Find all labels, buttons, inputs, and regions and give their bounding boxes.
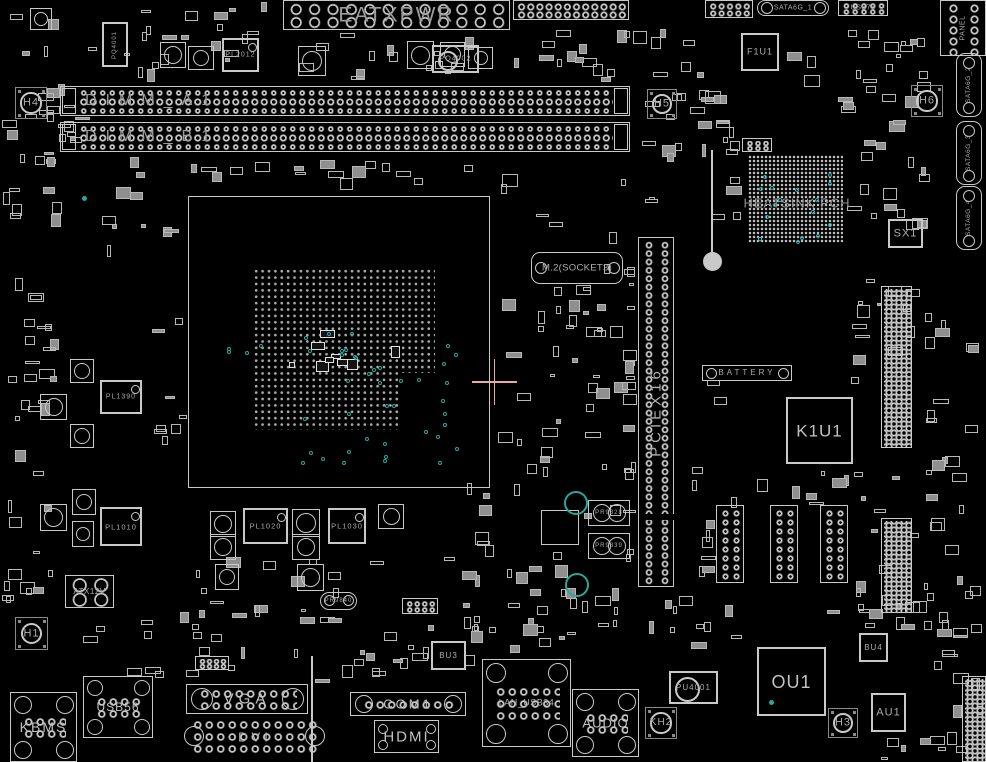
small-component: [300, 617, 315, 624]
small-component: [12, 204, 22, 216]
fiducial-h1-label: H1: [23, 628, 39, 639]
sx1-chip-label: SX1: [894, 228, 918, 239]
pin-circle: [193, 50, 209, 66]
small-component: [881, 757, 888, 760]
small-component: [908, 157, 914, 169]
small-component: [957, 576, 962, 584]
small-component: [886, 64, 893, 72]
dimm-b1-slot-label: DIMM_B1: [85, 129, 219, 145]
small-component: [706, 530, 710, 541]
small-component: [255, 162, 270, 173]
pl1020-chip[interactable]: PL1020: [243, 508, 288, 544]
small-component: [665, 600, 671, 609]
fiducial-tick: [648, 734, 651, 737]
teal-via: [441, 399, 445, 403]
small-component: [858, 41, 870, 48]
small-component: [517, 393, 531, 401]
small-component: [164, 229, 179, 232]
atx12v-connector[interactable]: ATX12V: [65, 575, 114, 608]
small-component: [673, 606, 677, 613]
bu4-chip[interactable]: BU4: [859, 633, 888, 662]
small-component: [787, 52, 801, 60]
small-component: [549, 222, 563, 227]
small-component: [625, 469, 634, 481]
teal-via-2: [82, 196, 87, 201]
small-component: [141, 10, 151, 13]
dimm-b1-slot[interactable]: DIMM_B1: [60, 122, 630, 152]
pl1390-chip-label: PL1390: [106, 394, 136, 401]
pq4002-chip[interactable]: PQ4002: [432, 45, 479, 73]
small-component: [294, 166, 304, 171]
small-component: [116, 187, 131, 199]
small-component: [660, 29, 665, 38]
small-component: [653, 72, 668, 77]
small-component: [884, 204, 897, 210]
teal-ring-2: [565, 573, 589, 597]
small-component: [185, 11, 199, 22]
small-component: [369, 51, 374, 62]
small-component: [26, 588, 32, 595]
socket-center-pad: [289, 362, 295, 368]
small-component: [550, 374, 555, 378]
small-component: [211, 634, 222, 642]
small-component: [241, 647, 245, 659]
heatsink-pch-label: HEATSINK PCH: [730, 194, 864, 212]
small-component: [730, 177, 740, 184]
small-component: [595, 596, 611, 606]
small-component: [860, 184, 869, 195]
header-bottom-1: [402, 598, 438, 614]
pciex16-slot[interactable]: PCIEX16: [638, 237, 674, 587]
small-component: [192, 624, 199, 630]
small-component: [370, 561, 384, 565]
teal-via: [445, 381, 449, 385]
small-component: [112, 224, 117, 229]
small-component: [47, 106, 60, 113]
small-component: [858, 301, 862, 305]
fiducial-h6: H6: [911, 85, 943, 117]
small-component: [575, 57, 585, 63]
teal-via: [417, 378, 421, 382]
panel-header[interactable]: PANEL: [940, 0, 986, 56]
small-component: [474, 624, 478, 631]
small-component: [714, 397, 727, 405]
small-component: [935, 328, 950, 337]
hole-field: [884, 521, 911, 612]
mount-hole-1: [703, 252, 722, 271]
small-component: [514, 484, 520, 496]
choke-20: [378, 504, 404, 529]
small-component: [477, 541, 490, 545]
fiducial-h4: H4: [15, 87, 47, 119]
pl2012-chip[interactable]: PL2012: [222, 38, 259, 72]
teal-via: [436, 435, 440, 439]
teal-via: [828, 223, 832, 227]
teal-via: [770, 186, 774, 190]
small-component: [47, 157, 55, 167]
kbms-port[interactable]: KBMS: [10, 692, 77, 762]
bu3-chip[interactable]: BU3: [431, 641, 466, 670]
teal-via: [340, 349, 344, 353]
small-component: [952, 473, 967, 481]
pin-circle: [444, 695, 462, 713]
pin-field: [517, 3, 627, 19]
teal-via: [227, 347, 231, 351]
small-component: [953, 705, 962, 718]
small-component: [863, 79, 876, 84]
pin-circle: [214, 515, 232, 533]
small-component: [15, 416, 21, 421]
small-component: [920, 738, 931, 745]
fiducial-tick: [831, 733, 834, 736]
small-component: [556, 306, 561, 314]
header-top-1: [513, 0, 629, 20]
teal-via: [346, 379, 350, 383]
component-cluster-29: [465, 480, 495, 580]
sata6g-3-connector-label: SATA6G_3: [966, 135, 973, 171]
small-component: [414, 178, 423, 186]
teal-via: [442, 362, 446, 366]
small-component: [933, 399, 949, 404]
small-component: [726, 149, 737, 155]
small-component: [8, 569, 22, 579]
com1-port[interactable]: COM1: [350, 692, 466, 716]
pin-circle: [56, 696, 74, 714]
teal-via: [800, 236, 804, 240]
small-component: [705, 91, 721, 103]
small-component: [352, 166, 366, 178]
fiducial-tick: [650, 92, 653, 95]
dvi-port-label: DVI: [238, 731, 272, 744]
choke-2: [160, 42, 186, 68]
fiducial-tick: [853, 711, 856, 714]
small-component: [579, 44, 587, 55]
dimm-a1-slot[interactable]: DIMM_A1: [60, 86, 630, 116]
small-component: [542, 41, 555, 47]
eatxpwr-connector[interactable]: EATXPWR: [283, 0, 510, 30]
component-cluster-7: [2, 150, 64, 355]
small-component: [861, 152, 874, 161]
small-component: [328, 618, 341, 623]
sata6g-2-connector[interactable]: SATA6G_2: [956, 53, 982, 117]
small-component: [489, 627, 496, 633]
small-component: [857, 305, 870, 317]
small-component: [75, 117, 90, 121]
m2-socket3-connector[interactable]: M.2(SOCKET3): [531, 252, 623, 284]
audio-jack-block[interactable]: AUDIO: [572, 689, 639, 757]
pu4001-component[interactable]: PU4001: [669, 671, 718, 704]
small-component: [10, 14, 22, 20]
small-component: [725, 605, 733, 617]
small-component: [162, 436, 168, 445]
hole-grid-right-1: [881, 286, 912, 448]
pin-field: [406, 601, 436, 613]
teal-via: [765, 215, 769, 219]
small-component: [570, 598, 577, 609]
small-component: [22, 51, 30, 56]
small-component: [856, 70, 861, 79]
pin-circle: [297, 538, 315, 556]
pin-circle: [486, 663, 506, 683]
sata6g-1-connector[interactable]: SATA6G_1: [757, 0, 829, 16]
f1u1-chip-label: F1U1: [747, 48, 773, 57]
pr9839-component[interactable]: PR9839: [588, 533, 630, 559]
fiducial-tick: [42, 114, 45, 117]
small-component: [601, 77, 611, 82]
sata6g-3-connector[interactable]: SATA6G_3: [956, 121, 982, 185]
small-component: [152, 329, 165, 333]
pin-circle: [76, 494, 92, 510]
small-component: [107, 245, 111, 258]
header-pch-top: [742, 138, 772, 152]
dvi-port[interactable]: DVI: [180, 714, 330, 760]
small-component: [848, 30, 856, 37]
kbms-port-label: KBMS: [20, 720, 68, 734]
pr9840-component[interactable]: PR9840: [320, 592, 357, 610]
hdmi-port[interactable]: HDMI: [374, 720, 439, 753]
small-component: [832, 478, 848, 488]
pin-circle: [486, 724, 506, 744]
hdmi-port-label: HDMI: [383, 729, 429, 744]
small-component: [919, 174, 929, 182]
small-component: [372, 668, 380, 677]
small-component: [947, 732, 956, 745]
small-component: [959, 505, 964, 515]
teal-via: [816, 234, 820, 238]
pl1030-chip[interactable]: PL1030: [328, 508, 366, 544]
teal-via: [365, 437, 369, 441]
sata6g-2-connector-label: SATA6G_2: [966, 67, 973, 103]
pin-circle: [44, 508, 63, 527]
small-component: [514, 58, 520, 68]
sx1-chip[interactable]: SX1: [888, 219, 923, 248]
pin-circle: [576, 693, 594, 711]
small-component: [199, 647, 210, 656]
small-component: [48, 570, 53, 578]
k1u1-chip[interactable]: K1U1: [786, 397, 853, 464]
small-component: [642, 141, 656, 146]
small-component: [196, 570, 201, 578]
fiducial-tick: [18, 645, 21, 648]
f1u1-chip[interactable]: F1U1: [741, 33, 779, 71]
pl1010-chip[interactable]: PL1010: [100, 507, 142, 546]
small-component: [882, 94, 896, 102]
au1-chip[interactable]: AU1: [871, 693, 906, 732]
small-component: [702, 144, 706, 156]
small-component: [697, 72, 705, 78]
small-component: [360, 650, 365, 654]
small-component: [340, 33, 355, 38]
fiducial-h6-label: H6: [919, 96, 935, 107]
small-component: [876, 142, 886, 150]
teal-via: [347, 412, 351, 416]
small-component: [247, 31, 259, 35]
small-component: [692, 480, 697, 491]
choke-10: [70, 424, 94, 448]
small-component: [896, 54, 901, 58]
small-component: [593, 375, 600, 378]
com1-port-label: COM1: [383, 698, 433, 711]
small-component: [683, 40, 695, 46]
small-component: [698, 121, 712, 129]
vga-port[interactable]: VGA: [186, 684, 308, 714]
small-component: [24, 319, 35, 327]
component-cluster-9: [100, 150, 185, 280]
small-component: [320, 160, 334, 169]
pin-field: [746, 141, 770, 151]
small-component: [866, 86, 876, 93]
header-top-2: [705, 0, 753, 18]
pl1390-chip[interactable]: PL1390: [100, 380, 142, 414]
component-cluster-18: [688, 120, 746, 240]
m2-socket3-connector-label: M.2(SOCKET3): [542, 263, 612, 273]
teal-via: [811, 210, 815, 214]
pin-field: [709, 3, 751, 17]
small-component: [201, 588, 207, 594]
choke-13: [72, 521, 94, 547]
pl1030-chip-label: PL1030: [331, 522, 363, 530]
usb56-header[interactable]: USB56: [83, 676, 153, 738]
pin-circle: [963, 235, 975, 247]
teal-via: [455, 447, 459, 451]
choke-15: [210, 534, 236, 560]
pin-circle: [576, 736, 594, 754]
usb78-header-label: USB78: [851, 5, 876, 12]
pin-circle: [411, 46, 430, 65]
pciex16-slot-label: PCIEX16: [649, 367, 664, 457]
small-component: [295, 172, 306, 176]
pr9828-component[interactable]: PR9828: [588, 500, 630, 526]
fiducial-h3: H3: [828, 708, 858, 738]
small-component: [539, 55, 554, 62]
small-component: [230, 167, 243, 176]
pr9839-component-label: PR9839: [595, 543, 623, 549]
small-component: [626, 376, 636, 380]
small-component: [232, 613, 247, 618]
small-component: [554, 287, 562, 296]
small-component: [179, 415, 188, 418]
small-component: [804, 75, 820, 87]
teal-via: [438, 461, 442, 465]
choke-3: [188, 46, 214, 70]
sata6g-4-connector[interactable]: SATA6G_4: [956, 186, 982, 250]
small-component: [8, 376, 17, 383]
component-cluster-15: [80, 600, 280, 685]
small-component: [7, 130, 18, 140]
small-component: [20, 154, 25, 162]
small-component: [968, 345, 979, 353]
pq4001-chip[interactable]: PQ4001: [102, 22, 128, 67]
small-component: [506, 352, 522, 358]
choke-17: [292, 509, 320, 537]
small-component: [530, 589, 541, 597]
pin-circle: [618, 693, 636, 711]
pin-circle: [778, 368, 789, 379]
small-component: [2, 120, 16, 128]
small-component: [897, 209, 905, 218]
eatxpwr-connector-label: EATXPWR: [338, 5, 454, 26]
small-component: [186, 670, 199, 677]
small-component: [483, 493, 490, 499]
component-cluster-19: [845, 120, 935, 235]
pq4001-chip-label: PQ4001: [112, 30, 118, 58]
choke-18: [292, 534, 320, 560]
small-component: [191, 164, 196, 173]
small-component: [44, 46, 48, 57]
small-component: [938, 747, 946, 751]
small-component: [572, 358, 578, 363]
small-component: [645, 199, 658, 202]
small-component: [623, 394, 637, 405]
small-component: [255, 605, 260, 617]
small-component: [543, 467, 548, 477]
vga-port-label: VGA: [224, 692, 271, 707]
small-component: [861, 496, 866, 501]
small-component: [625, 361, 634, 373]
small-component: [180, 612, 189, 623]
small-component: [559, 636, 565, 640]
fiducial-kh2-label: KH2: [650, 718, 672, 728]
small-component: [866, 279, 876, 284]
small-component: [757, 479, 768, 492]
small-component: [696, 624, 704, 629]
small-component: [175, 318, 184, 325]
teal-via: [796, 240, 800, 244]
small-component: [679, 596, 693, 606]
small-component: [871, 213, 877, 220]
pin-circle: [134, 719, 150, 735]
pin-circle: [355, 695, 373, 713]
small-component: [624, 269, 634, 275]
pu4001-component-label: PU4001: [676, 684, 711, 692]
slot-latch: [614, 88, 628, 114]
small-component: [294, 649, 299, 659]
fiducial-h4-label: H4: [23, 98, 39, 109]
small-component: [130, 192, 143, 200]
teal-via: [454, 353, 458, 357]
small-component: [152, 62, 159, 69]
component-cluster-35: [0, 560, 60, 615]
small-component: [9, 517, 22, 528]
component-cluster-33: [622, 250, 636, 580]
small-component: [15, 450, 26, 461]
small-component: [858, 604, 864, 611]
pin-circle: [74, 428, 90, 444]
small-component: [389, 52, 398, 62]
usb78-header[interactable]: USB78: [838, 0, 888, 16]
small-component: [510, 645, 520, 653]
battery-connector[interactable]: BATTERY: [702, 365, 792, 381]
choke-9: [40, 394, 67, 420]
small-component: [479, 505, 493, 516]
dimm-a1-slot-label: DIMM_A1: [85, 93, 219, 109]
small-component: [690, 107, 705, 115]
small-component: [43, 187, 55, 194]
small-component: [583, 287, 591, 291]
lan-usb34-stack[interactable]: LAN_USB34: [482, 659, 571, 747]
small-component: [366, 653, 375, 661]
fiducial-tick: [43, 645, 46, 648]
teal-via: [304, 336, 308, 340]
pin-circle: [963, 102, 975, 114]
small-component: [556, 30, 571, 37]
small-component: [83, 636, 97, 643]
small-component: [193, 632, 202, 638]
small-component: [622, 382, 636, 390]
dip-component-2: [770, 505, 798, 583]
ou1-chip[interactable]: OU1: [757, 647, 826, 716]
pin-circle: [302, 51, 322, 71]
